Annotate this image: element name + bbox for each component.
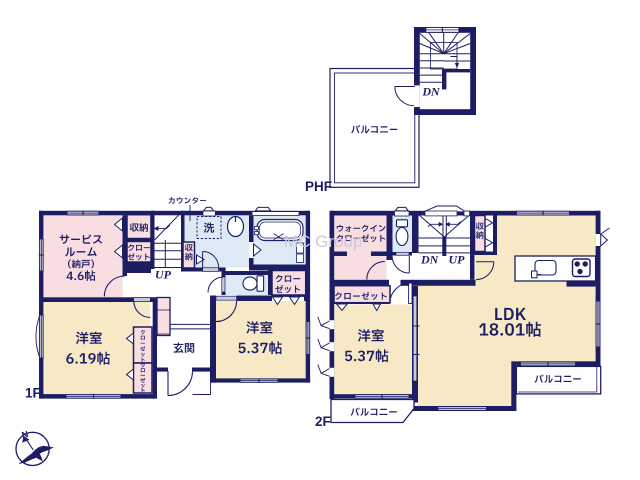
- svg-text:2F: 2F: [315, 414, 331, 429]
- svg-text:PHF: PHF: [305, 179, 332, 194]
- svg-text:DN: DN: [421, 85, 441, 99]
- svg-text:DN: DN: [420, 253, 440, 267]
- svg-text:UP: UP: [155, 268, 172, 282]
- svg-text:UP: UP: [449, 253, 466, 267]
- svg-text:1F: 1F: [25, 386, 41, 401]
- svg-text:MC Group: MC Group: [284, 232, 362, 251]
